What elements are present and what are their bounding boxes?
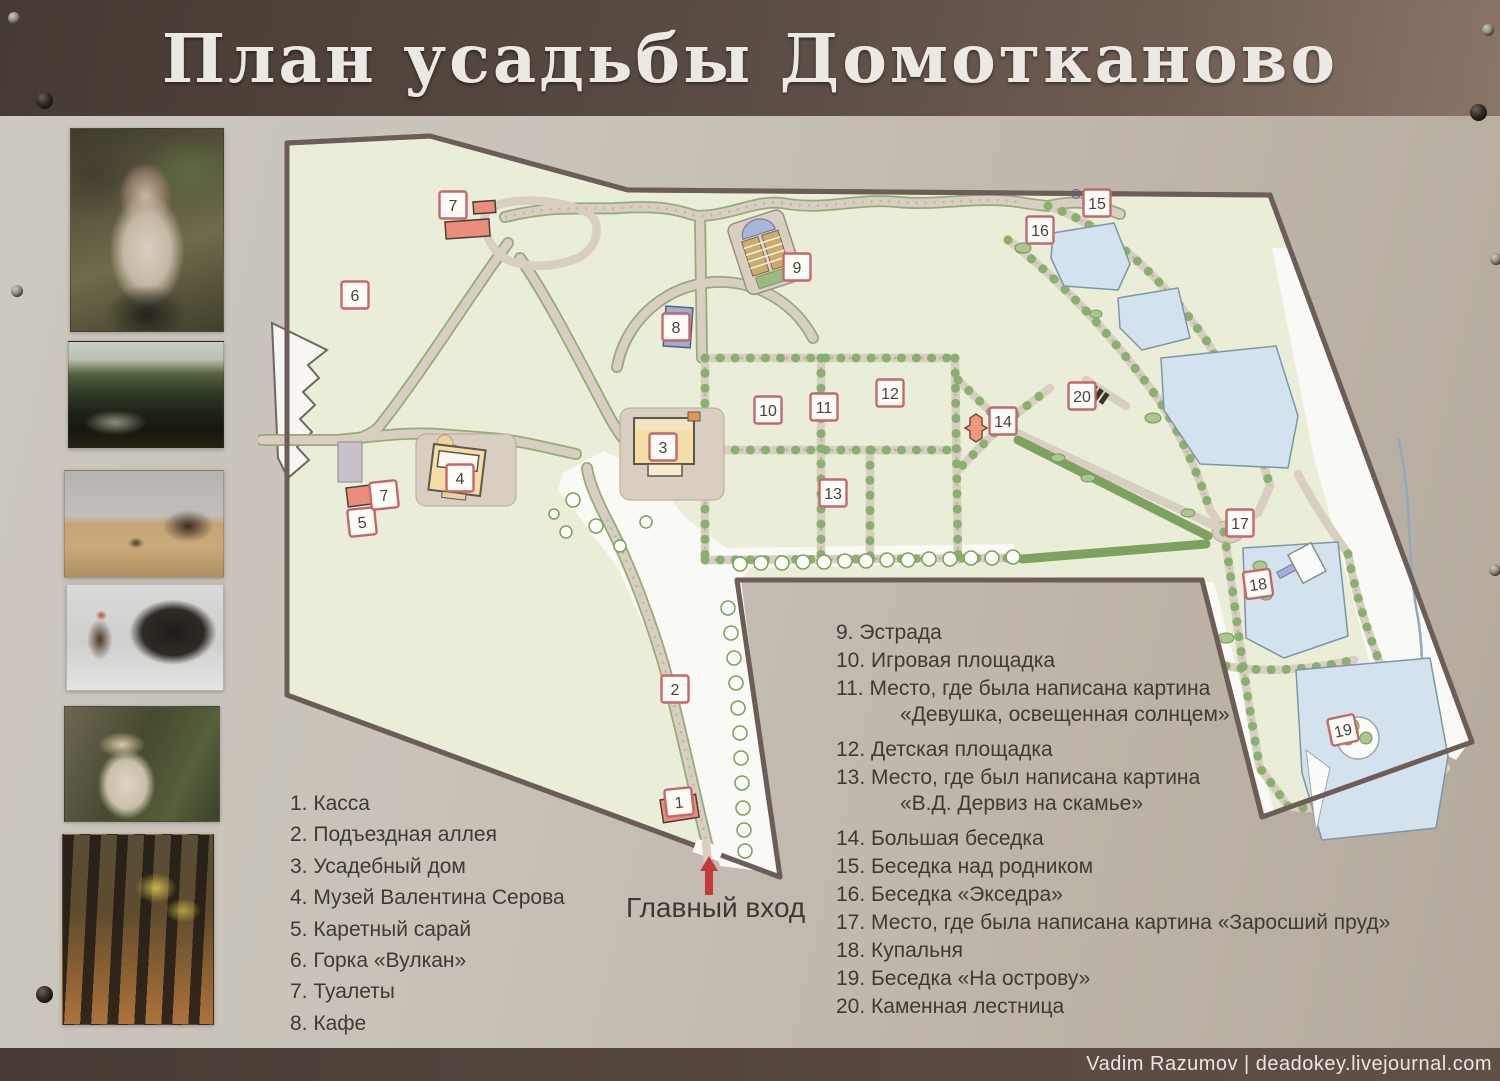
legend-item-16: 16. Беседка «Экседра» (836, 881, 1390, 909)
map-marker-7: 7 (440, 192, 467, 219)
map-marker-20: 20 (1069, 383, 1096, 410)
map-marker-5: 5 (347, 507, 377, 537)
svg-text:8: 8 (672, 320, 681, 337)
legend-item-11-sub: «Девушка, освещенная солнцем» (836, 703, 1390, 726)
screw (8, 12, 20, 24)
map-marker-3: 3 (650, 434, 677, 461)
map-marker-12: 12 (877, 380, 904, 407)
legend-item-13: 13. Место, где был написана картина (836, 764, 1390, 792)
svg-text:5: 5 (357, 515, 368, 533)
map-marker-11: 11 (811, 394, 838, 421)
legend-item-15: 15. Беседка над родником (836, 853, 1390, 881)
legend-item-20: 20. Каменная лестница (836, 993, 1390, 1021)
legend-item-18: 18. Купальня (836, 937, 1390, 965)
painting-overgrown-pond (68, 341, 224, 449)
painting-field-with-horses (64, 470, 224, 578)
entrance-label: Главный вход (626, 892, 796, 924)
screw (11, 285, 23, 297)
screw (1482, 24, 1494, 36)
entrance-arrow (700, 856, 718, 896)
map-marker-6: 6 (342, 282, 369, 309)
legend-item-2: 2. Подъездная аллея (290, 819, 565, 850)
svg-text:10: 10 (759, 403, 777, 420)
svg-text:17: 17 (1231, 516, 1249, 533)
legend-item-12: 12. Детская площадка (836, 736, 1390, 764)
map-marker-10: 10 (755, 397, 782, 424)
map-marker-8: 8 (663, 314, 690, 341)
svg-text:18: 18 (1248, 576, 1268, 595)
map-marker-13: 13 (820, 480, 847, 507)
toilets-building-top (445, 219, 490, 239)
svg-text:1: 1 (674, 795, 685, 813)
pond-exedra (1051, 223, 1130, 290)
painting-autumn-alley (62, 834, 214, 1025)
legend-left: 1. Касса2. Подъездная аллея3. Усадебный … (290, 788, 565, 1039)
legend-item-13-sub: «В.Д. Дервиз на скамье» (836, 792, 1390, 815)
svg-text:6: 6 (351, 288, 360, 305)
legend-item-7: 7. Туалеты (290, 976, 565, 1007)
page-title: План усадьбы Домотканово (162, 19, 1338, 98)
legend-item-8: 8. Кафе (290, 1008, 565, 1039)
painting-woman-with-horse-winter (66, 584, 224, 691)
map-marker-16: 16 (1027, 217, 1054, 244)
legend-item-5: 5. Каретный сарай (290, 914, 565, 945)
svg-text:2: 2 (671, 682, 680, 699)
svg-text:3: 3 (659, 440, 668, 457)
map-marker-4: 4 (447, 465, 474, 492)
legend-item-10: 10. Игровая площадка (836, 647, 1390, 675)
bottom-strip: Vadim Razumov | deadokey.livejournal.com (0, 1048, 1500, 1081)
map-marker-9: 9 (784, 254, 811, 281)
svg-text:14: 14 (994, 414, 1012, 431)
legend-right: 9. Эстрада10. Игровая площадка11. Место,… (836, 619, 1390, 1021)
svg-text:13: 13 (824, 486, 842, 503)
title-banner: План усадьбы Домотканово (0, 0, 1500, 116)
legend-item-4: 4. Музей Валентина Серова (290, 882, 565, 913)
map-marker-15: 15 (1084, 190, 1111, 217)
map-marker-2: 2 (662, 676, 689, 703)
legend-item-17: 17. Место, где была написана картина «За… (836, 909, 1390, 937)
svg-text:9: 9 (793, 260, 802, 277)
bolt (1470, 104, 1487, 121)
svg-text:20: 20 (1073, 389, 1091, 406)
toilets-building-top-2 (473, 200, 496, 214)
legend-item-6: 6. Горка «Вулкан» (290, 945, 565, 976)
svg-text:11: 11 (816, 400, 833, 417)
screw (1489, 564, 1500, 576)
svg-text:15: 15 (1088, 196, 1106, 213)
legend-item-1: 1. Касса (290, 788, 565, 819)
legend-item-3: 3. Усадебный дом (290, 851, 565, 882)
screw (1490, 253, 1500, 265)
svg-text:12: 12 (881, 386, 899, 403)
svg-text:7: 7 (449, 198, 458, 215)
painting-lady-in-white-hat (64, 706, 220, 822)
map-marker-18: 18 (1243, 569, 1273, 599)
map-marker-7: 7 (369, 480, 399, 510)
painting-girl-in-sunlight (70, 128, 224, 332)
svg-text:16: 16 (1031, 223, 1049, 240)
svg-text:4: 4 (456, 471, 465, 488)
map-marker-14: 14 (990, 408, 1017, 435)
legend-item-9: 9. Эстрада (836, 619, 1390, 647)
map-marker-17: 17 (1227, 510, 1254, 537)
map-marker-1: 1 (664, 787, 694, 817)
watermark: Vadim Razumov | deadokey.livejournal.com (1086, 1053, 1500, 1076)
svg-text:7: 7 (379, 488, 390, 506)
legend-item-14: 14. Большая беседка (836, 825, 1390, 853)
bolt (36, 986, 53, 1003)
bolt (36, 92, 53, 109)
legend-item-19: 19. Беседка «На острову» (836, 965, 1390, 993)
information-board: План усадьбы Домотканово (0, 0, 1500, 1081)
legend-item-11: 11. Место, где была написана картина (836, 675, 1390, 703)
